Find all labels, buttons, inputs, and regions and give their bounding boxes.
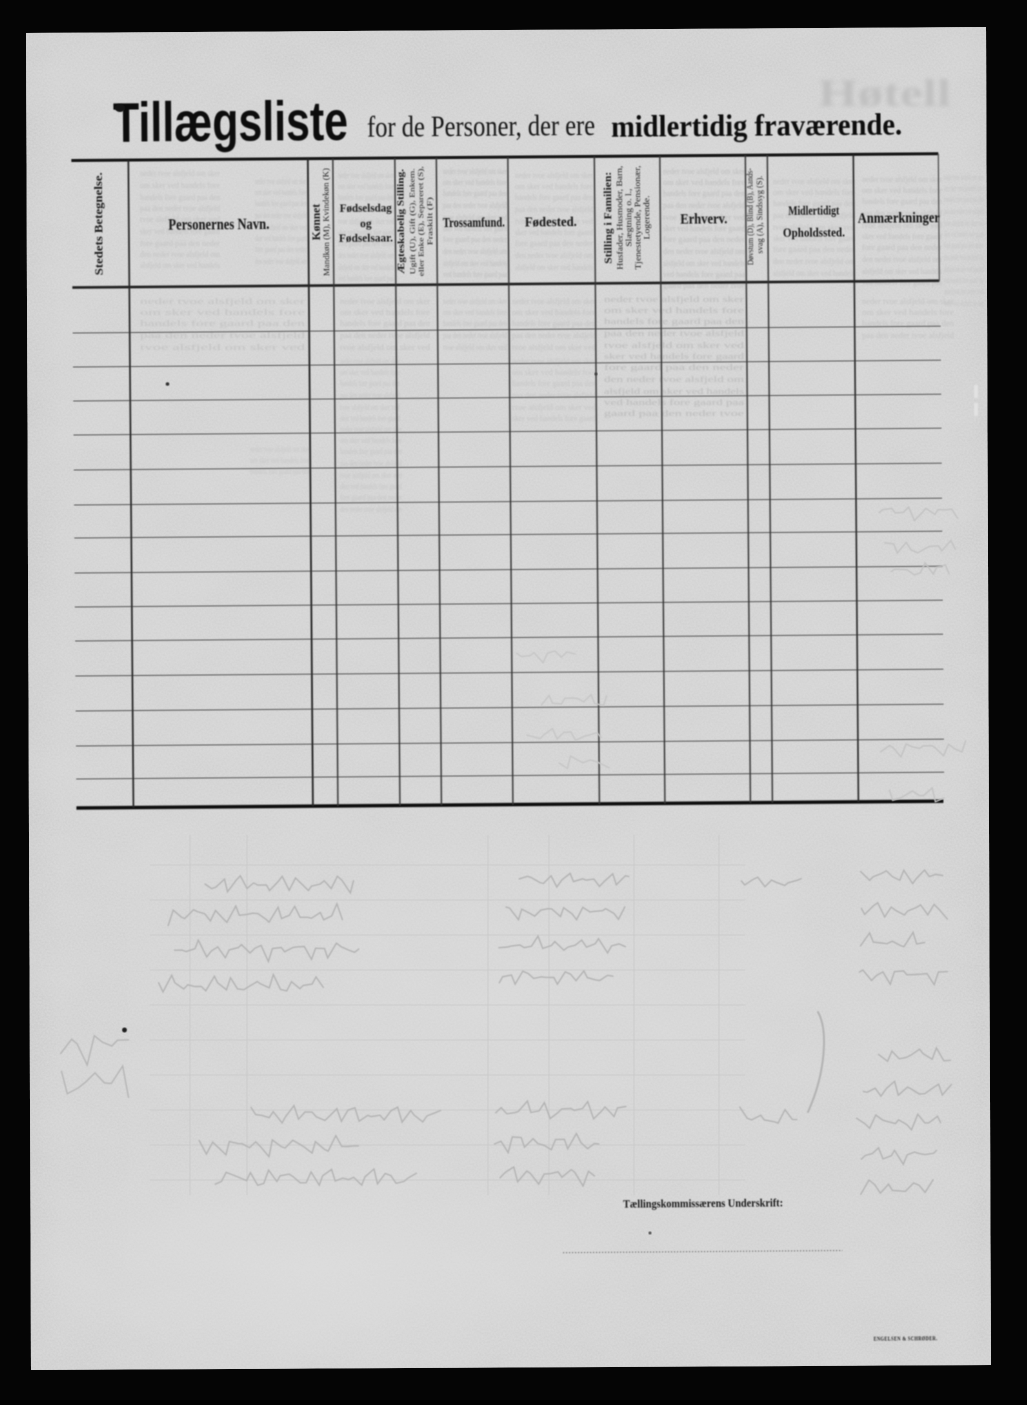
- svg-text:handels fore gaard paa den: handels fore gaard paa den: [338, 192, 394, 202]
- svg-text:om sker ved handels fore: om sker ved handels fore: [255, 187, 307, 197]
- svg-text:Anmærkninger: Anmærkninger: [858, 210, 940, 227]
- svg-text:sker ved handels fore gaard: sker ved handels fore gaard: [862, 231, 943, 241]
- svg-text:tvoe alsfjeld om sker ved: tvoe alsfjeld om sker ved: [340, 470, 403, 480]
- svg-text:om sker ved handels fore: om sker ved handels fore: [862, 307, 954, 317]
- svg-text:den neder tvoe alsfjeld om: den neder tvoe alsfjeld om: [773, 256, 855, 266]
- svg-text:alsfjeld om sker ved handels: alsfjeld om sker ved handels: [140, 260, 220, 270]
- svg-text:Trossamfund.: Trossamfund.: [443, 215, 505, 230]
- svg-text:Ægteskabelig Stilling.: Ægteskabelig Stilling.: [395, 168, 407, 274]
- svg-text:tvoe alsfjeld om sker ved: tvoe alsfjeld om sker ved: [512, 402, 597, 412]
- svg-text:neder tvoe alsfjeld om sker: neder tvoe alsfjeld om sker: [944, 172, 984, 182]
- svg-text:handels fore gaard paa den: handels fore gaard paa den: [862, 196, 943, 206]
- svg-text:Personernes Navn.: Personernes Navn.: [168, 216, 269, 234]
- svg-text:om sker ved handels fore: om sker ved handels fore: [663, 177, 745, 187]
- svg-text:fore gaard paa den neder: fore gaard paa den neder: [773, 244, 855, 254]
- svg-text:alsfjeld om sker ved handels: alsfjeld om sker ved handels: [443, 258, 507, 268]
- svg-text:handels fore gaard paa den: handels fore gaard paa den: [443, 318, 508, 328]
- svg-text:om sker ved handels fore: om sker ved handels fore: [340, 367, 400, 377]
- svg-text:Slægtning o. l.,: Slægtning o. l.,: [624, 189, 633, 247]
- svg-text:neder tvoe alsfjeld om sker: neder tvoe alsfjeld om sker: [443, 296, 507, 306]
- svg-text:fore gaard paa den neder: fore gaard paa den neder: [604, 362, 744, 372]
- svg-text:Fødested.: Fødested.: [525, 214, 577, 229]
- svg-text:fore gaard paa den neder: fore gaard paa den neder: [862, 242, 942, 252]
- svg-text:tvoe alsfjeld om sker ved: tvoe alsfjeld om sker ved: [140, 342, 306, 352]
- svg-text:gaard paa den neder tvoe: gaard paa den neder tvoe: [944, 286, 984, 296]
- svg-text:svag (A), Sindssyg (S).: svag (A), Sindssyg (S).: [755, 176, 765, 254]
- svg-text:neder tvoe alsfjeld om sker: neder tvoe alsfjeld om sker: [250, 444, 310, 454]
- svg-text:og: og: [360, 218, 372, 230]
- svg-text:den neder tvoe alsfjeld om: den neder tvoe alsfjeld om: [663, 246, 745, 256]
- svg-text:paa den neder tvoe alsfjeld: paa den neder tvoe alsfjeld: [944, 206, 984, 216]
- svg-text:om sker ved handels fore: om sker ved handels fore: [862, 185, 942, 195]
- svg-text:neder tvoe alsfjeld om sker: neder tvoe alsfjeld om sker: [140, 296, 305, 306]
- svg-text:fore gaard paa den neder: fore gaard paa den neder: [515, 238, 593, 248]
- svg-text:handels fore gaard paa den: handels fore gaard paa den: [140, 192, 221, 202]
- svg-text:tvoe alsfjeld om sker ved: tvoe alsfjeld om sker ved: [443, 342, 508, 352]
- svg-text:handels fore gaard paa den: handels fore gaard paa den: [250, 466, 310, 476]
- svg-text:ENGELSEN & SCHRØDER.: ENGELSEN & SCHRØDER.: [874, 1335, 938, 1343]
- svg-text:eller Enke (E), Separeret (S),: eller Enke (E), Separeret (S),: [416, 166, 426, 276]
- svg-text:om sker ved handels fore: om sker ved handels fore: [773, 187, 855, 197]
- svg-text:Tillægsliste: Tillægsliste: [113, 89, 348, 154]
- svg-text:Fraskilt (F): Fraskilt (F): [425, 197, 434, 246]
- svg-text:Stedets Betegnelse.: Stedets Betegnelse.: [91, 172, 106, 275]
- svg-text:den neder tvoe alsfjeld om: den neder tvoe alsfjeld om: [862, 254, 942, 264]
- svg-text:paa den neder tvoe alsfjeld: paa den neder tvoe alsfjeld: [140, 203, 221, 213]
- svg-text:den neder tvoe alsfjeld om: den neder tvoe alsfjeld om: [604, 374, 745, 384]
- svg-text:Stilling i Familien:: Stilling i Familien:: [602, 172, 615, 264]
- svg-text:om sker ved handels fore: om sker ved handels fore: [944, 183, 984, 193]
- svg-text:sker ved handels fore gaard: sker ved handels fore gaard: [340, 413, 400, 423]
- svg-text:paa den neder tvoe alsfjeld: paa den neder tvoe alsfjeld: [340, 330, 431, 340]
- svg-text:alsfjeld om sker ved handels: alsfjeld om sker ved handels: [604, 386, 744, 396]
- svg-text:paa den neder tvoe alsfjeld: paa den neder tvoe alsfjeld: [512, 390, 597, 400]
- svg-text:den neder tvoe alsfjeld om: den neder tvoe alsfjeld om: [443, 246, 507, 256]
- svg-text:fore gaard paa den neder: fore gaard paa den neder: [140, 238, 220, 248]
- svg-text:gaard paa den neder tvoe: gaard paa den neder tvoe: [604, 408, 744, 418]
- svg-text:Mandkøn (M), Kvindekøn (K): Mandkøn (M), Kvindekøn (K): [320, 168, 331, 276]
- svg-text:om sker ved handels fore: om sker ved handels fore: [340, 307, 430, 317]
- svg-text:om sker ved handels fore: om sker ved handels fore: [443, 307, 507, 317]
- svg-text:neder tvoe alsfjeld om sker: neder tvoe alsfjeld om sker: [140, 168, 220, 178]
- svg-text:alsfjeld om sker ved handels: alsfjeld om sker ved handels: [862, 266, 942, 276]
- svg-text:sker ved handels fore gaard: sker ved handels fore gaard: [255, 233, 307, 243]
- svg-text:alsfjeld om sker ved handels: alsfjeld om sker ved handels: [338, 262, 394, 272]
- svg-text:paa den neder tvoe alsfjeld: paa den neder tvoe alsfjeld: [663, 200, 746, 210]
- svg-text:ved handels fore gaard paa: ved handels fore gaard paa: [944, 275, 984, 285]
- svg-text:den neder tvoe alsfjeld om: den neder tvoe alsfjeld om: [515, 250, 593, 260]
- svg-text:handels fore gaard paa den: handels fore gaard paa den: [443, 188, 508, 198]
- svg-text:Husfader, Husmoder, Barn,: Husfader, Husmoder, Barn,: [615, 166, 625, 270]
- svg-text:neder tvoe alsfjeld om sker: neder tvoe alsfjeld om sker: [340, 296, 430, 306]
- svg-text:neder tvoe alsfjeld om sker: neder tvoe alsfjeld om sker: [663, 166, 745, 176]
- svg-text:sker ved handels fore gaard: sker ved handels fore gaard: [340, 481, 402, 491]
- svg-text:om sker ved handels fore: om sker ved handels fore: [338, 181, 394, 191]
- svg-text:neder tvoe alsfjeld om sker: neder tvoe alsfjeld om sker: [773, 176, 855, 186]
- svg-text:om sker ved handels fore: om sker ved handels fore: [604, 305, 744, 315]
- svg-text:paa den neder tvoe alsfjeld: paa den neder tvoe alsfjeld: [443, 330, 508, 340]
- svg-text:fore gaard paa den neder: fore gaard paa den neder: [944, 240, 984, 250]
- svg-text:Logerende.: Logerende.: [642, 195, 651, 239]
- svg-text:tvoe alsfjeld om sker ved: tvoe alsfjeld om sker ved: [944, 218, 984, 228]
- svg-text:fore gaard paa den neder: fore gaard paa den neder: [255, 244, 307, 254]
- svg-text:paa den neder tvoe alsfjeld: paa den neder tvoe alsfjeld: [862, 330, 955, 340]
- svg-text:den neder tvoe alsfjeld om: den neder tvoe alsfjeld om: [944, 252, 984, 262]
- svg-text:ved handels fore gaard paa: ved handels fore gaard paa: [663, 269, 745, 279]
- svg-text:sker ved handels fore gaard: sker ved handels fore gaard: [944, 229, 984, 239]
- svg-text:neder tvoe alsfjeld om sker: neder tvoe alsfjeld om sker: [255, 176, 307, 186]
- svg-text:alsfjeld om sker ved handels: alsfjeld om sker ved handels: [515, 262, 593, 272]
- svg-text:om sker ved handels fore: om sker ved handels fore: [512, 367, 596, 377]
- svg-text:paa den neder tvoe alsfjeld: paa den neder tvoe alsfjeld: [443, 200, 508, 210]
- svg-text:paa den neder tvoe alsfjeld: paa den neder tvoe alsfjeld: [512, 330, 597, 340]
- svg-text:om sker ved handels fore: om sker ved handels fore: [250, 455, 310, 465]
- svg-text:Tællingskommissærens Underskri: Tællingskommissærens Underskrift:: [623, 1197, 783, 1210]
- svg-text:neder tvoe alsfjeld om sker: neder tvoe alsfjeld om sker: [862, 296, 954, 306]
- svg-text:handels fore gaard paa den: handels fore gaard paa den: [515, 192, 594, 202]
- svg-text:fore gaard paa den neder: fore gaard paa den neder: [443, 234, 507, 244]
- svg-text:Midlertidigt: Midlertidigt: [788, 202, 840, 217]
- svg-text:Tjenestetyende, Pensionær,: Tjenestetyende, Pensionær,: [633, 166, 643, 270]
- svg-text:neder tvoe alsfjeld om sker: neder tvoe alsfjeld om sker: [512, 296, 596, 306]
- svg-text:om sker ved handels fore: om sker ved handels fore: [140, 307, 305, 317]
- svg-text:neder tvoe alsfjeld om sker: neder tvoe alsfjeld om sker: [443, 166, 507, 176]
- svg-text:den neder tvoe alsfjeld om: den neder tvoe alsfjeld om: [340, 504, 402, 514]
- svg-text:handels fore gaard paa den: handels fore gaard paa den: [340, 446, 403, 456]
- svg-text:handels fore gaard paa den: handels fore gaard paa den: [140, 318, 306, 328]
- svg-text:midlertidig fraværende.: midlertidig fraværende.: [611, 106, 902, 143]
- svg-text:sker ved handels fore gaard: sker ved handels fore gaard: [604, 351, 745, 361]
- svg-text:handels fore gaard paa den: handels fore gaard paa den: [340, 318, 431, 328]
- svg-text:fore gaard paa den neder: fore gaard paa den neder: [663, 234, 745, 244]
- svg-text:handels fore gaard paa den: handels fore gaard paa den: [604, 316, 745, 326]
- svg-text:den neder tvoe alsfjeld om: den neder tvoe alsfjeld om: [140, 249, 220, 259]
- svg-text:neder tvoe alsfjeld om sker: neder tvoe alsfjeld om sker: [604, 294, 744, 304]
- svg-text:paa den neder tvoe alsfjeld: paa den neder tvoe alsfjeld: [340, 458, 403, 468]
- svg-text:paa den neder tvoe alsfjeld: paa den neder tvoe alsfjeld: [604, 328, 745, 338]
- svg-text:handels fore gaard paa den: handels fore gaard paa den: [944, 194, 984, 204]
- svg-text:om sker ved handels fore: om sker ved handels fore: [512, 307, 596, 317]
- svg-text:om sker ved handels fore: om sker ved handels fore: [443, 177, 507, 187]
- svg-text:Døvstum (D), Blind (B), Aands-: Døvstum (D), Blind (B), Aands-: [745, 168, 755, 265]
- svg-text:Erhverv.: Erhverv.: [680, 211, 727, 227]
- svg-text:neder tvoe alsfjeld om sker: neder tvoe alsfjeld om sker: [862, 174, 942, 184]
- svg-text:sker ved handels fore gaard: sker ved handels fore gaard: [512, 413, 597, 423]
- svg-text:den neder tvoe alsfjeld om: den neder tvoe alsfjeld om: [338, 250, 394, 260]
- svg-text:om sker ved handels fore: om sker ved handels fore: [340, 435, 402, 445]
- svg-text:Fødselsdag: Fødselsdag: [340, 203, 392, 215]
- svg-text:handels fore gaard paa den: handels fore gaard paa den: [340, 378, 400, 388]
- svg-text:tvoe alsfjeld om sker ved: tvoe alsfjeld om sker ved: [340, 402, 401, 412]
- svg-text:tvoe alsfjeld om sker ved: tvoe alsfjeld om sker ved: [512, 342, 597, 352]
- svg-text:handels fore gaard paa den: handels fore gaard paa den: [512, 378, 597, 388]
- svg-text:fore gaard paa den neder: fore gaard paa den neder: [340, 492, 402, 502]
- svg-text:om sker ved handels fore: om sker ved handels fore: [140, 180, 220, 190]
- svg-text:den neder tvoe alsfjeld om: den neder tvoe alsfjeld om: [255, 256, 307, 266]
- svg-text:alsfjeld om sker ved handels: alsfjeld om sker ved handels: [663, 258, 745, 268]
- svg-text:ved handels fore gaard paa: ved handels fore gaard paa: [604, 397, 744, 407]
- svg-text:paa den neder tvoe alsfjeld: paa den neder tvoe alsfjeld: [515, 204, 594, 214]
- svg-text:alsfjeld om sker ved handels: alsfjeld om sker ved handels: [773, 268, 855, 278]
- svg-text:neder tvoe alsfjeld om sker: neder tvoe alsfjeld om sker: [338, 170, 394, 180]
- svg-text:om sker ved handels fore: om sker ved handels fore: [515, 181, 593, 191]
- svg-text:Fødselsaar.: Fødselsaar.: [339, 232, 393, 244]
- svg-text:neder tvoe alsfjeld om sker: neder tvoe alsfjeld om sker: [512, 356, 596, 366]
- svg-text:tvoe alsfjeld om sker ved: tvoe alsfjeld om sker ved: [340, 342, 431, 352]
- svg-text:handels fore gaard paa den: handels fore gaard paa den: [255, 198, 307, 208]
- svg-text:handels fore gaard paa den: handels fore gaard paa den: [663, 188, 746, 198]
- svg-text:handels fore gaard paa den: handels fore gaard paa den: [512, 318, 597, 328]
- svg-text:for de Personer, der ere: for de Personer, der ere: [367, 109, 595, 144]
- svg-text:neder tvoe alsfjeld om sker: neder tvoe alsfjeld om sker: [515, 170, 593, 180]
- svg-text:ved handels fore gaard paa: ved handels fore gaard paa: [443, 269, 507, 279]
- svg-text:Opholdssted.: Opholdssted.: [783, 224, 845, 239]
- svg-text:tvoe alsfjeld om sker ved: tvoe alsfjeld om sker ved: [604, 340, 745, 350]
- svg-text:ved handels fore gaard paa: ved handels fore gaard paa: [338, 273, 394, 283]
- svg-text:alsfjeld om sker ved handels: alsfjeld om sker ved handels: [944, 264, 984, 274]
